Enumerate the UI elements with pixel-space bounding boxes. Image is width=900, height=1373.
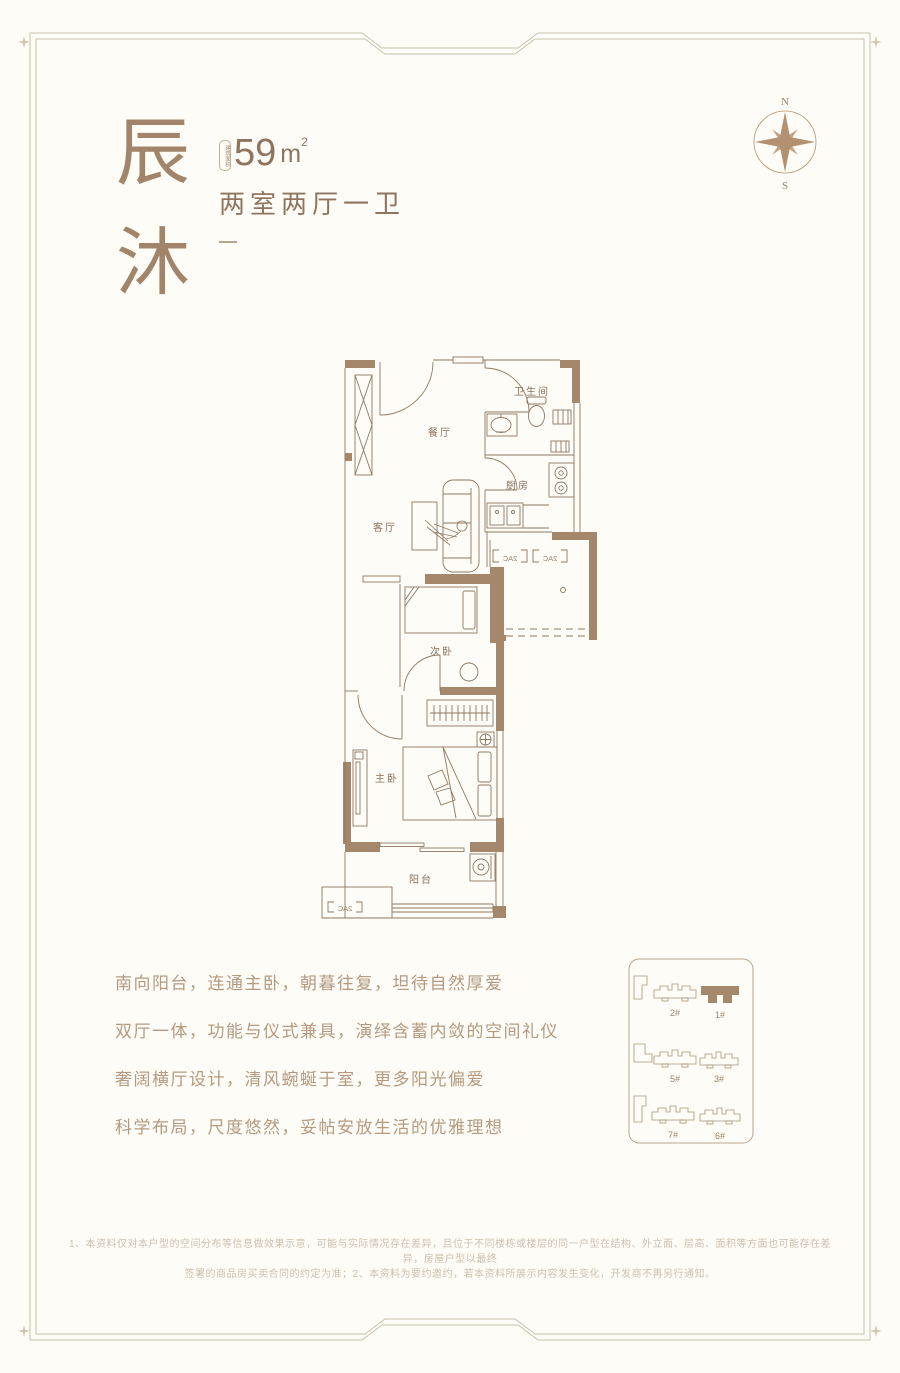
unit-info-block: 建筑面积 59 m 2 两室两厅一卫 — [219, 134, 405, 243]
site-plan-buildings — [634, 976, 740, 1124]
room-label-kitchen: 厨房 — [506, 479, 530, 492]
entry-door — [380, 362, 433, 415]
description-line-1: 南向阳台，连通主卧，朝暮往复，坦待自然厚爱 — [115, 975, 595, 993]
compass-rose: N S — [743, 92, 827, 192]
room-label-living: 客厅 — [373, 521, 397, 534]
outdoor-ac-box — [322, 887, 392, 918]
window-shaft-hatch — [355, 375, 372, 475]
master-bedroom-door — [358, 695, 402, 739]
building-2 — [654, 984, 696, 1001]
area-type-badge: 建筑面积 — [219, 140, 231, 171]
double-bed — [403, 747, 497, 820]
title-char-2: 沐 — [116, 226, 190, 300]
room-label-master-bedroom: 主卧 — [375, 772, 399, 785]
building-fragment-3 — [634, 1096, 646, 1122]
description-line-3: 奢阔横厅设计，清风蜿蜒于室，更多阳光偏爱 — [115, 1071, 595, 1089]
room-label-second-bedroom: 次卧 — [430, 645, 454, 658]
building-label-7: 7# — [668, 1130, 678, 1140]
building-3 — [700, 1052, 738, 1068]
room-layout-label: 两室两厅一卫 — [219, 184, 405, 221]
building-fragment-1 — [634, 976, 647, 999]
room-labels: 餐厅 卫生间 厨房 客厅 次卧 主卧 阳台 2AC 2AC 2AC — [337, 385, 557, 913]
description-line-2: 双厅一体，功能与仪式兼具，演绎含蓄内敛的空间礼仪 — [115, 1023, 595, 1041]
building-label-1: 1# — [715, 1010, 725, 1020]
site-plan: 2# 1# 5# 3# 7# 6# — [626, 956, 756, 1146]
disclaimer-line-2: 签署的商品房买卖合同的约定为准；2、本资料为要约邀约，若本资料所展示内容发生变化… — [60, 1267, 840, 1282]
building-label-5: 5# — [670, 1074, 680, 1084]
title-char-1: 辰 — [116, 116, 190, 190]
stove-icon — [549, 463, 574, 497]
floor-plan: 餐厅 卫生间 厨房 客厅 次卧 主卧 阳台 2AC 2AC 2AC — [315, 348, 600, 938]
building-fragment-2 — [634, 1044, 652, 1062]
area-unit: m — [280, 142, 301, 167]
ac-label-2: 2AC — [542, 554, 557, 563]
description-list: 南向阳台，连通主卧，朝暮往复，坦待自然厚爱 双厅一体，功能与仪式兼具，演绎含蓄内… — [115, 975, 595, 1167]
building-5 — [654, 1050, 696, 1067]
single-bed — [405, 587, 477, 633]
building-label-3: 3# — [714, 1074, 724, 1084]
disclaimer-line-1: 1、本资料仅对本户型的空间分布等信息做效果示意，可能与实际情况存在差异，且位于不… — [60, 1237, 840, 1267]
ceiling-ac-icon — [477, 732, 494, 747]
room-label-dining: 餐厅 — [428, 426, 452, 439]
building-7 — [652, 1106, 694, 1123]
title-divider-dash — [219, 241, 237, 243]
toilet-icon — [527, 397, 546, 427]
walls — [343, 360, 597, 918]
unit-name-title: 辰 沐 — [110, 116, 196, 300]
sliding-door — [380, 843, 464, 852]
wardrobe — [427, 700, 493, 726]
description-line-4: 科学布局，尺度悠然，妥帖安放生活的优雅理想 — [115, 1119, 595, 1137]
area-row: 建筑面积 59 m 2 — [219, 134, 405, 172]
compass-south-label: S — [782, 180, 788, 192]
hall-threshold — [363, 576, 400, 582]
ac-label-1: 2AC — [502, 554, 517, 563]
room-label-balcony: 阳台 — [409, 873, 433, 886]
second-bedroom-door — [404, 655, 440, 691]
building-label-2: 2# — [670, 1008, 680, 1018]
building-1-highlighted — [701, 986, 739, 1003]
person-figure — [425, 520, 467, 545]
sofa — [443, 480, 479, 572]
compass-north-label: N — [781, 96, 789, 108]
disclaimer: 1、本资料仅对本户型的空间分布等信息做效果示意，可能与实际情况存在差异，且位于不… — [60, 1237, 840, 1282]
area-value: 59 — [234, 134, 276, 172]
ac-label-3: 2AC — [337, 904, 352, 913]
room-label-bathroom: 卫生间 — [514, 385, 550, 398]
coffee-table — [412, 502, 437, 550]
bathroom-sink-icon — [487, 414, 517, 436]
area-exponent: 2 — [301, 136, 308, 148]
kitchen-sink-icon — [487, 503, 549, 528]
shaft-boxes — [551, 410, 571, 452]
building-label-6: 6# — [715, 1131, 725, 1141]
side-table — [460, 663, 478, 681]
plan-lines — [322, 357, 588, 918]
compass-star-main — [755, 112, 815, 172]
building-6 — [700, 1108, 740, 1124]
boundary-dashed-lines — [506, 629, 588, 636]
washing-machine-icon — [470, 854, 495, 881]
top-window — [453, 357, 483, 363]
balcony-railing — [392, 904, 493, 912]
master-window-radiator — [353, 750, 367, 826]
wall-dot — [561, 588, 566, 593]
